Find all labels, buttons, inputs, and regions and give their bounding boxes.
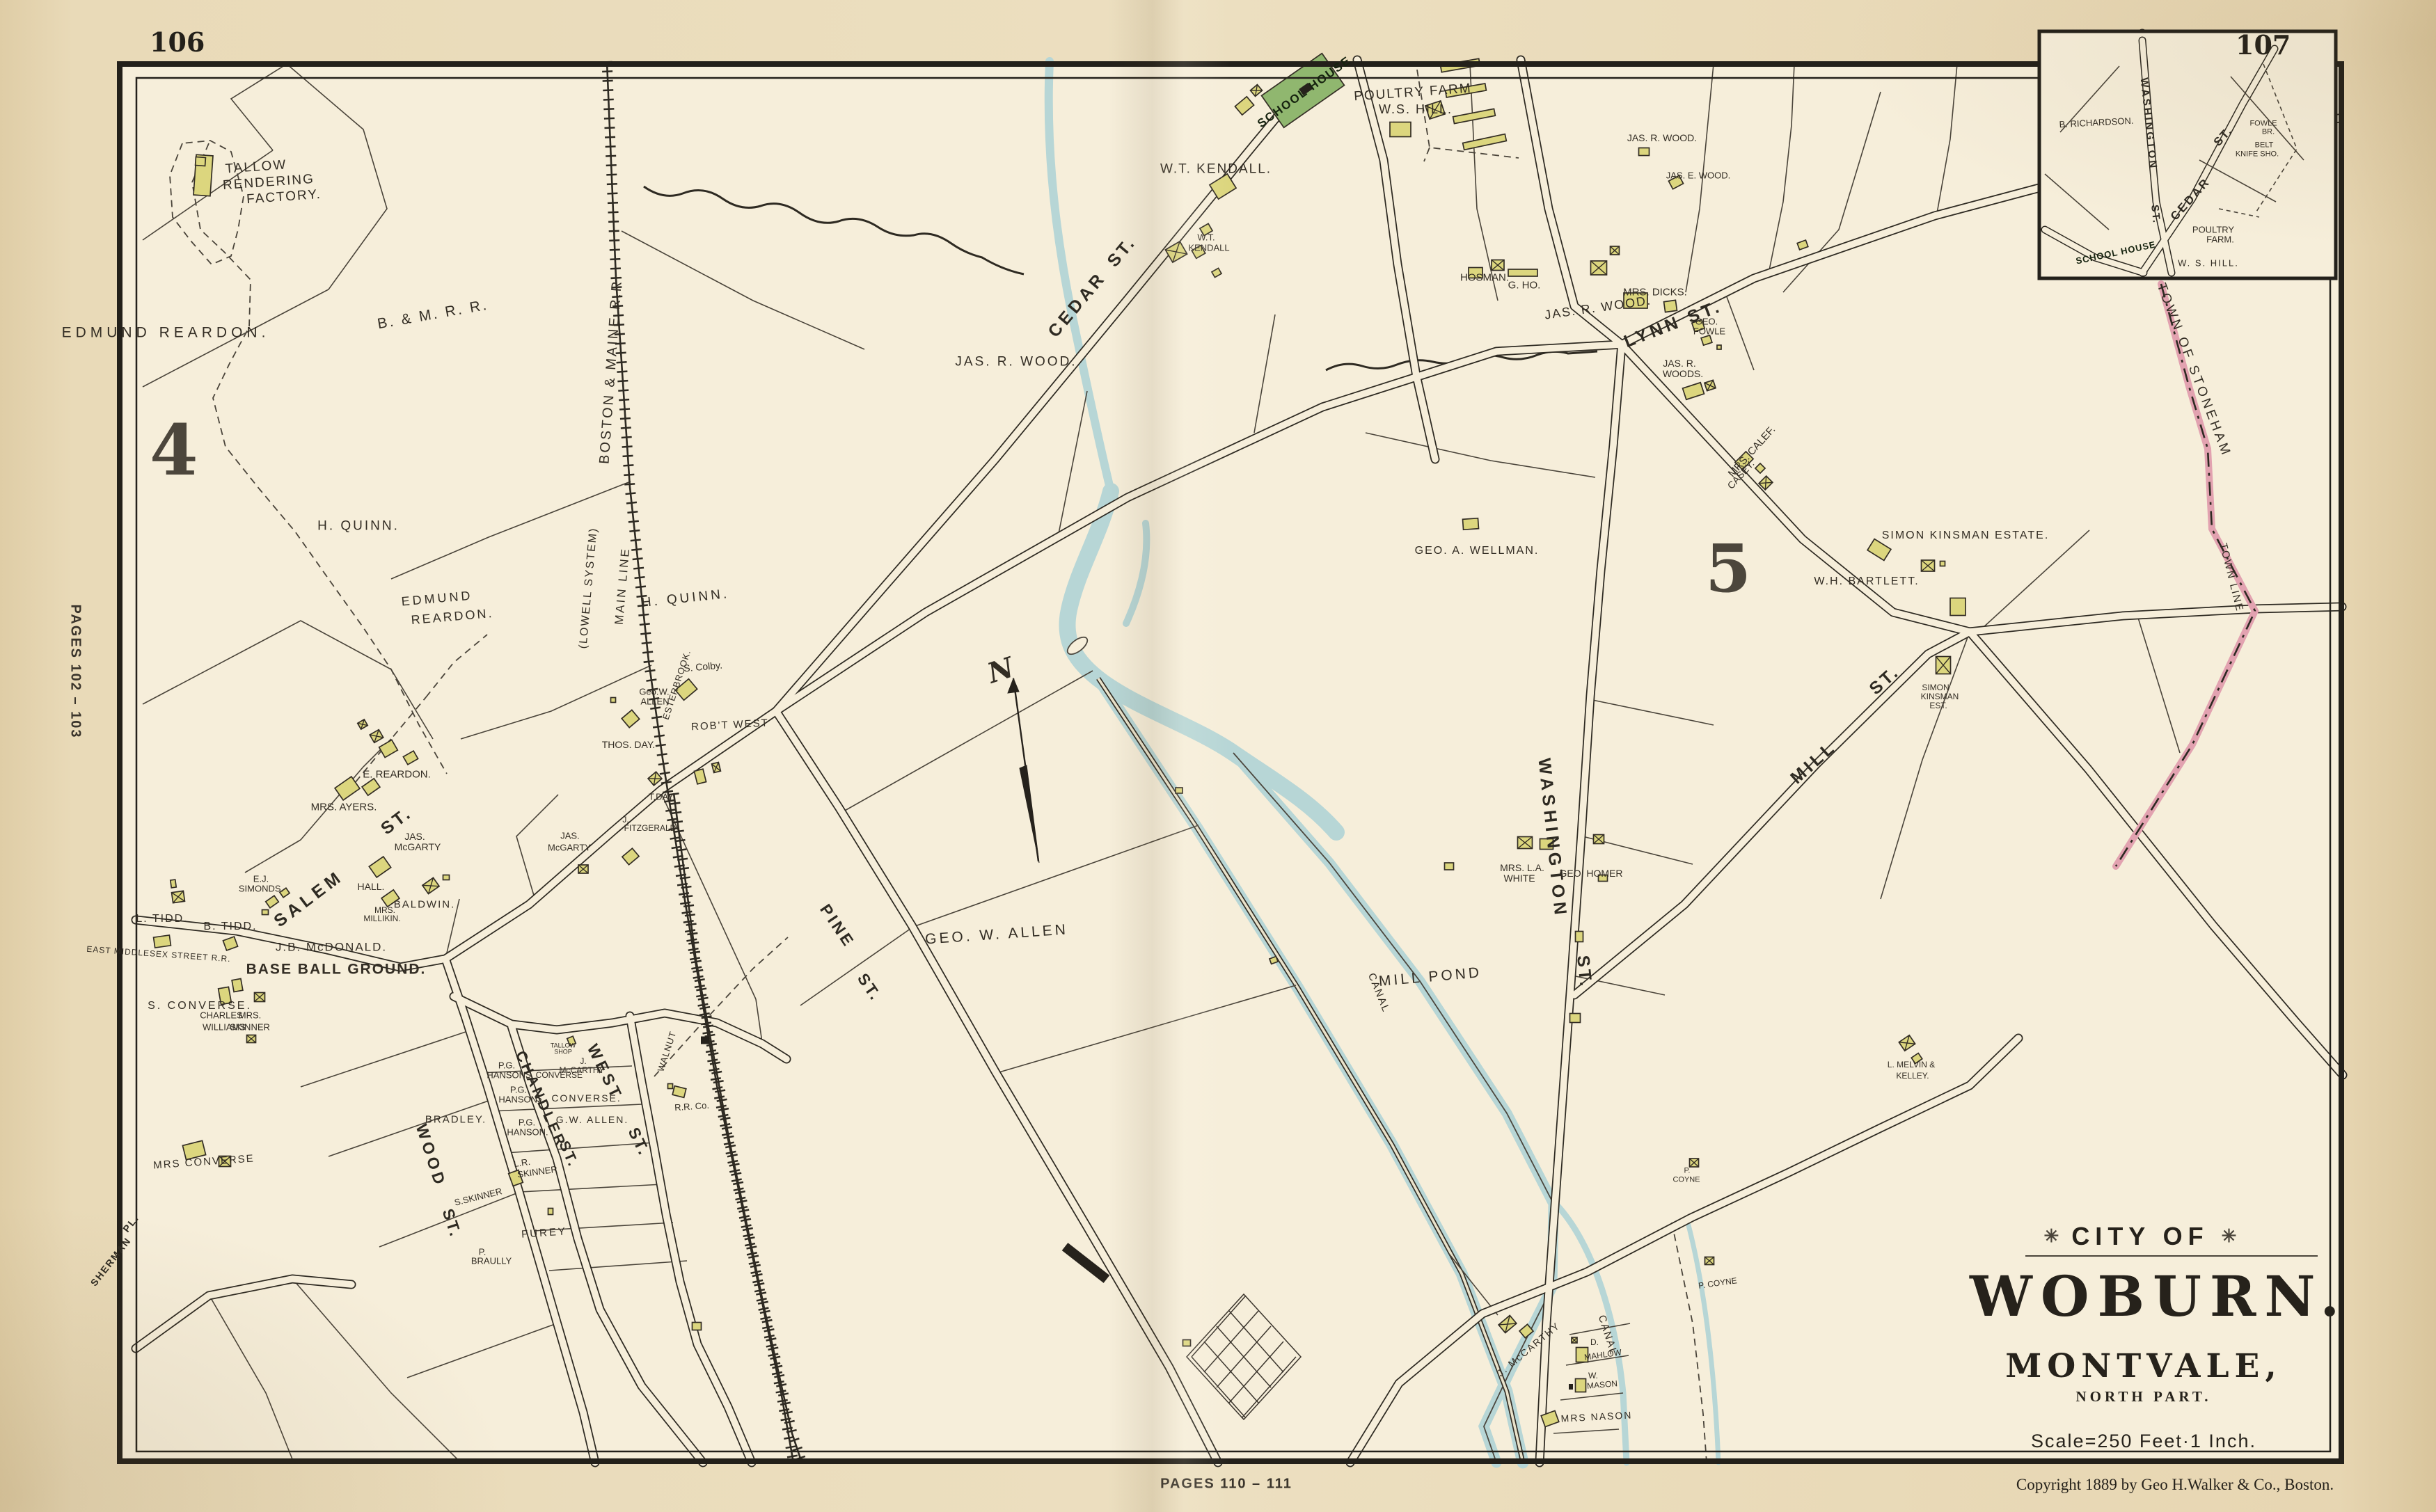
edge-pages-left: PAGES 102 – 103 <box>68 604 84 738</box>
owner-label: JAS. <box>560 831 579 841</box>
owner-label: CHARLES <box>200 1011 242 1020</box>
building <box>1639 148 1650 156</box>
building <box>1664 300 1677 312</box>
page-number-left: 106 <box>150 26 205 58</box>
owner-label: G. HO. <box>1508 280 1541 291</box>
edge-pages-bottom: PAGES 110 – 111 <box>1160 1477 1292 1493</box>
owner-label: MILLIKIN. <box>363 914 400 923</box>
crossed-barn-building <box>1936 657 1951 674</box>
building <box>548 1209 553 1215</box>
owner-label: B. TIDD. <box>203 921 257 932</box>
title-region: MONTVALE, <box>1970 1347 2318 1385</box>
title-rule <box>2025 1255 2318 1257</box>
owner-label: HOSMAN. <box>1460 273 1509 283</box>
title-kicker: CITY OF <box>2071 1222 2208 1250</box>
building <box>232 979 243 992</box>
owner-label: W.T. KENDALL. <box>1160 163 1272 176</box>
crossed-barn-building <box>1518 837 1533 849</box>
title-kicker-row: ✳CITY OF✳ <box>1970 1222 2311 1251</box>
title-region-part: NORTH PART. <box>1970 1388 2318 1406</box>
owner-label: McGARTY <box>548 843 591 852</box>
owner-label: T.DAY <box>649 793 674 802</box>
crossed-barn-building <box>1705 1257 1714 1265</box>
building <box>443 875 450 880</box>
flourish-icon: ✳ <box>2032 1225 2072 1246</box>
crossed-barn-building <box>578 865 588 873</box>
building <box>262 910 269 915</box>
crossed-barn-building <box>1922 560 1935 571</box>
owner-label: JAS. <box>404 831 425 841</box>
owner-label: P. <box>1684 1168 1691 1175</box>
crossed-barn-building <box>1690 1159 1699 1167</box>
owner-label: L. MELVIN & <box>1888 1060 1935 1069</box>
owner-label: JAS. R. WOOD. <box>1627 133 1697 143</box>
building <box>1576 932 1583 942</box>
atlas-page: { "page": { "left_page_number": "106", "… <box>0 0 2436 1512</box>
building <box>693 1323 702 1330</box>
black-building <box>701 1037 709 1044</box>
owner-label: SHOP <box>554 1049 572 1056</box>
owner-label: HANSON. <box>507 1128 548 1137</box>
owner-label: BELT <box>2255 142 2274 150</box>
owner-label: SKINNER <box>230 1023 270 1032</box>
building <box>668 1084 673 1089</box>
crossed-barn-building <box>1572 1337 1577 1343</box>
owner-label: JAS. R. WOOD. <box>955 356 1077 369</box>
owner-label: BRAULLY <box>471 1257 512 1266</box>
building <box>1463 518 1479 530</box>
owner-label: THOS. DAY. <box>602 740 656 749</box>
building <box>1576 1379 1586 1392</box>
owner-label: D. <box>1590 1338 1599 1346</box>
district-number-4: 4 <box>150 409 198 491</box>
building <box>1183 1340 1191 1346</box>
crossed-barn-building <box>172 891 185 902</box>
owner-label: EDMUND REARDON. <box>62 326 270 340</box>
black-building <box>1569 1384 1573 1390</box>
owner-label: JAS. E. WOOD. <box>1666 171 1730 180</box>
owner-label: GEO. A. WELLMAN. <box>1415 546 1540 557</box>
title-city-name: WOBURN. <box>1970 1264 2332 1329</box>
page-number-right: 107 <box>2236 29 2291 61</box>
owner-label: W. S. HILL. <box>2178 259 2239 268</box>
owner-label: EST. <box>1929 701 1947 710</box>
crossed-barn-building <box>1611 246 1620 255</box>
owner-label: FOWLE <box>2249 120 2277 128</box>
owner-label: FITZGERALD <box>624 824 677 832</box>
owner-label: POULTRY <box>2192 225 2234 234</box>
owner-label: BRADLEY. <box>425 1115 487 1125</box>
crossed-barn-building <box>247 1035 256 1043</box>
crossed-barn-building <box>1492 260 1504 271</box>
owner-label: MASON <box>1587 1379 1618 1390</box>
title-scale: Scale=250 Feet·1 Inch. <box>1970 1431 2318 1452</box>
owner-label: BASE BALL GROUND. <box>246 962 427 977</box>
owner-label: KINSMAN <box>1921 692 1959 701</box>
owner-label: W.T. <box>1197 233 1215 242</box>
owner-label: MRS. DICKS. <box>1623 287 1687 298</box>
owner-label: P.G. <box>498 1061 515 1070</box>
owner-label: WOODS. <box>1663 369 1703 379</box>
owner-label: E. REARDON. <box>363 770 431 780</box>
owner-label: W.H. BARTLETT. <box>1814 576 1919 587</box>
owner-label: L.R. <box>513 1157 530 1168</box>
owner-label: WHITE <box>1503 873 1535 883</box>
crossed-barn-building <box>1591 261 1607 275</box>
owner-label: Geo.W. <box>639 687 669 697</box>
owner-label: HALL. <box>358 882 385 891</box>
street-label: ST. <box>1574 955 1595 989</box>
building <box>1508 269 1537 276</box>
owner-label: SIMONDS. <box>239 884 283 893</box>
owner-label: MRS. <box>239 1011 262 1020</box>
flourish-icon: ✳ <box>2209 1225 2249 1246</box>
owner-label: L. TIDD. <box>136 914 188 925</box>
owner-label: BALDWIN. <box>394 900 456 910</box>
inset-bg <box>2039 31 2336 278</box>
street-label: ST. <box>2149 204 2162 224</box>
building <box>672 1086 686 1098</box>
crossed-barn-building <box>712 762 721 772</box>
building <box>1176 788 1183 793</box>
owner-label: FUREY <box>521 1226 568 1240</box>
owner-label: E.J. <box>253 875 269 884</box>
owner-label: P.G. <box>510 1085 527 1095</box>
owner-label: GEO. HOMER <box>1559 868 1622 878</box>
owner-label: GEO. <box>1695 317 1718 326</box>
owner-label: KENDALL <box>1188 244 1229 253</box>
owner-label: P.G. <box>519 1118 535 1127</box>
owner-label: MRS. L.A. <box>1500 863 1544 873</box>
owner-label: McGARTY <box>395 842 441 852</box>
owner-label: H. QUINN. <box>317 520 400 533</box>
owner-label: G.W. ALLEN. <box>556 1115 628 1124</box>
crossed-barn-building <box>1594 835 1604 844</box>
building <box>1570 1014 1581 1023</box>
building <box>1717 345 1721 349</box>
owner-label: MRS. AYERS. <box>311 802 377 813</box>
owner-label: KNIFE SHO. <box>2236 151 2279 159</box>
owner-label: SIMON KINSMAN ESTATE. <box>1882 530 2050 541</box>
building <box>1390 122 1411 137</box>
owner-label: J. <box>580 1057 586 1065</box>
building <box>154 935 171 948</box>
owner-label: KELLEY. <box>1896 1072 1929 1080</box>
owner-label: FOWLE <box>1693 327 1725 336</box>
title-copyright: Copyright 1889 by Geo H.Walker & Co., Bo… <box>1991 1476 2359 1494</box>
building <box>1940 562 1945 566</box>
building <box>611 698 616 703</box>
map-sheet: TALLOWRENDERINGFACTORY.EDMUND REARDON.B.… <box>0 0 2436 1512</box>
building <box>1445 863 1454 870</box>
owner-label: W.S. HILL. <box>1379 103 1453 116</box>
building <box>196 157 206 166</box>
owner-label: COYNE <box>1672 1177 1700 1184</box>
owner-label: BR. <box>2262 129 2275 136</box>
owner-label: R.R. Co. <box>674 1101 710 1112</box>
owner-label: JAS. R. <box>1663 358 1695 368</box>
owner-label: W. <box>1588 1371 1598 1380</box>
district-number-5: 5 <box>1705 530 1751 607</box>
building <box>171 880 176 888</box>
owner-label: FARM. <box>2206 235 2234 244</box>
building <box>1950 598 1966 616</box>
owner-label: J.B. McDONALD. <box>276 941 387 953</box>
crossed-barn-building <box>255 993 265 1002</box>
owner-label: SIMON <box>1922 683 1949 692</box>
title-block: ✳CITY OF✳ WOBURN. MONTVALE, NORTH PART. … <box>1970 1222 2359 1494</box>
